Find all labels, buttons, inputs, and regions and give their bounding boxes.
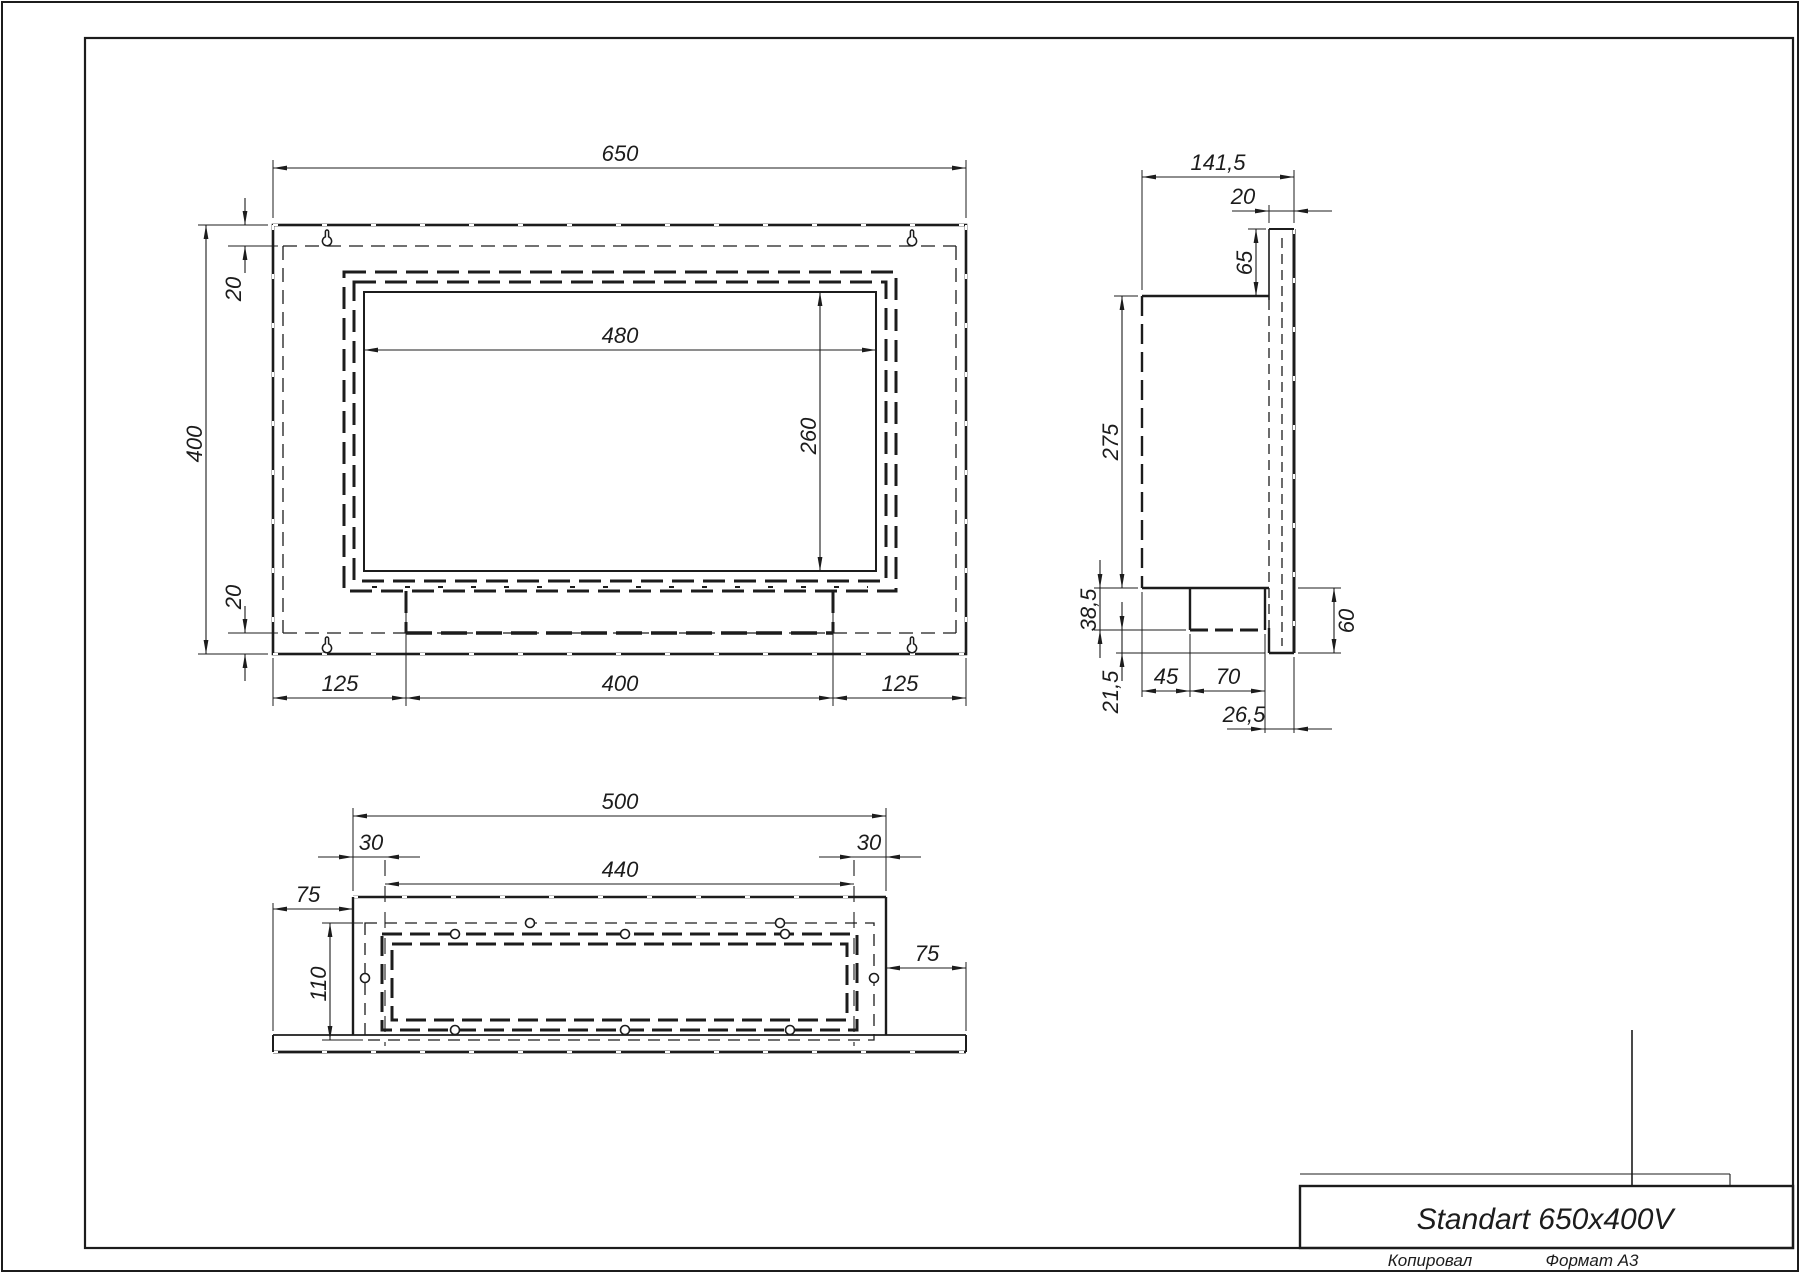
dim-front-bottom-flange: 20 — [221, 584, 246, 610]
drawing-sheet: Standart 650x400V Копировал Формат A3 — [0, 0, 1800, 1273]
dim-front-bottom-left: 125 — [322, 671, 359, 696]
title-block: Standart 650x400V Копировал Формат A3 — [1300, 1186, 1793, 1270]
dim-bottom-body-width: 500 — [602, 789, 639, 814]
dim-side-bottom-overhang: 21,5 — [1098, 670, 1123, 715]
dim-side-tray-edge-offset: 26,5 — [1222, 702, 1267, 727]
bottom-opening-inner-dashed — [392, 944, 847, 1020]
dim-side-top-overhang: 65 — [1232, 250, 1257, 275]
dim-front-bottom-right: 125 — [882, 671, 919, 696]
bottom-opening-outer-dashed — [365, 923, 874, 1040]
format-label: Формат A3 — [1545, 1251, 1639, 1270]
dim-side-flange-bottom-drop: 60 — [1334, 608, 1359, 633]
bottom-opening-mid-dashed — [382, 934, 857, 1030]
side-view-dimensions: 141,5 20 65 275 38,5 21,5 45 — [1076, 150, 1359, 733]
screw-holes — [361, 919, 879, 1035]
dim-front-bottom-center: 400 — [602, 671, 639, 696]
page-frame — [2, 2, 1798, 1271]
dim-side-tray-depth: 70 — [1216, 664, 1241, 689]
keyhole-slot-icon — [907, 230, 916, 246]
technical-drawing: Standart 650x400V Копировал Формат A3 — [0, 0, 1800, 1273]
drawing-title: Standart 650x400V — [1417, 1203, 1677, 1236]
dim-side-body-height: 275 — [1098, 423, 1123, 461]
dim-side-total-depth: 141,5 — [1190, 150, 1246, 175]
copied-label: Копировал — [1388, 1251, 1473, 1270]
dim-front-total-height: 400 — [182, 425, 207, 462]
dim-bottom-flange-left: 75 — [296, 882, 321, 907]
dim-front-opening-height: 260 — [796, 417, 821, 455]
dim-bottom-depth: 110 — [306, 966, 331, 1002]
dim-bottom-flange-right: 75 — [915, 941, 940, 966]
keyhole-slot-icon — [322, 637, 331, 653]
dim-side-flange-thickness: 20 — [1230, 184, 1256, 209]
dim-front-opening-width: 480 — [602, 323, 639, 348]
dim-bottom-inset-right: 30 — [857, 830, 882, 855]
side-view — [1142, 229, 1294, 653]
dim-side-tray-offset: 45 — [1154, 664, 1179, 689]
bottom-view — [273, 860, 966, 1052]
dim-bottom-opening-width: 440 — [602, 857, 639, 882]
dim-front-top-flange: 20 — [221, 276, 246, 302]
bottom-view-dimensions: 500 30 30 440 75 75 110 — [273, 789, 966, 1040]
dim-side-tray-height: 38,5 — [1076, 588, 1101, 632]
dim-bottom-inset-left: 30 — [359, 830, 384, 855]
dim-front-total-width: 650 — [602, 141, 639, 166]
front-view — [273, 225, 966, 654]
keyhole-slot-icon — [322, 230, 331, 246]
keyhole-slot-icon — [907, 637, 916, 653]
